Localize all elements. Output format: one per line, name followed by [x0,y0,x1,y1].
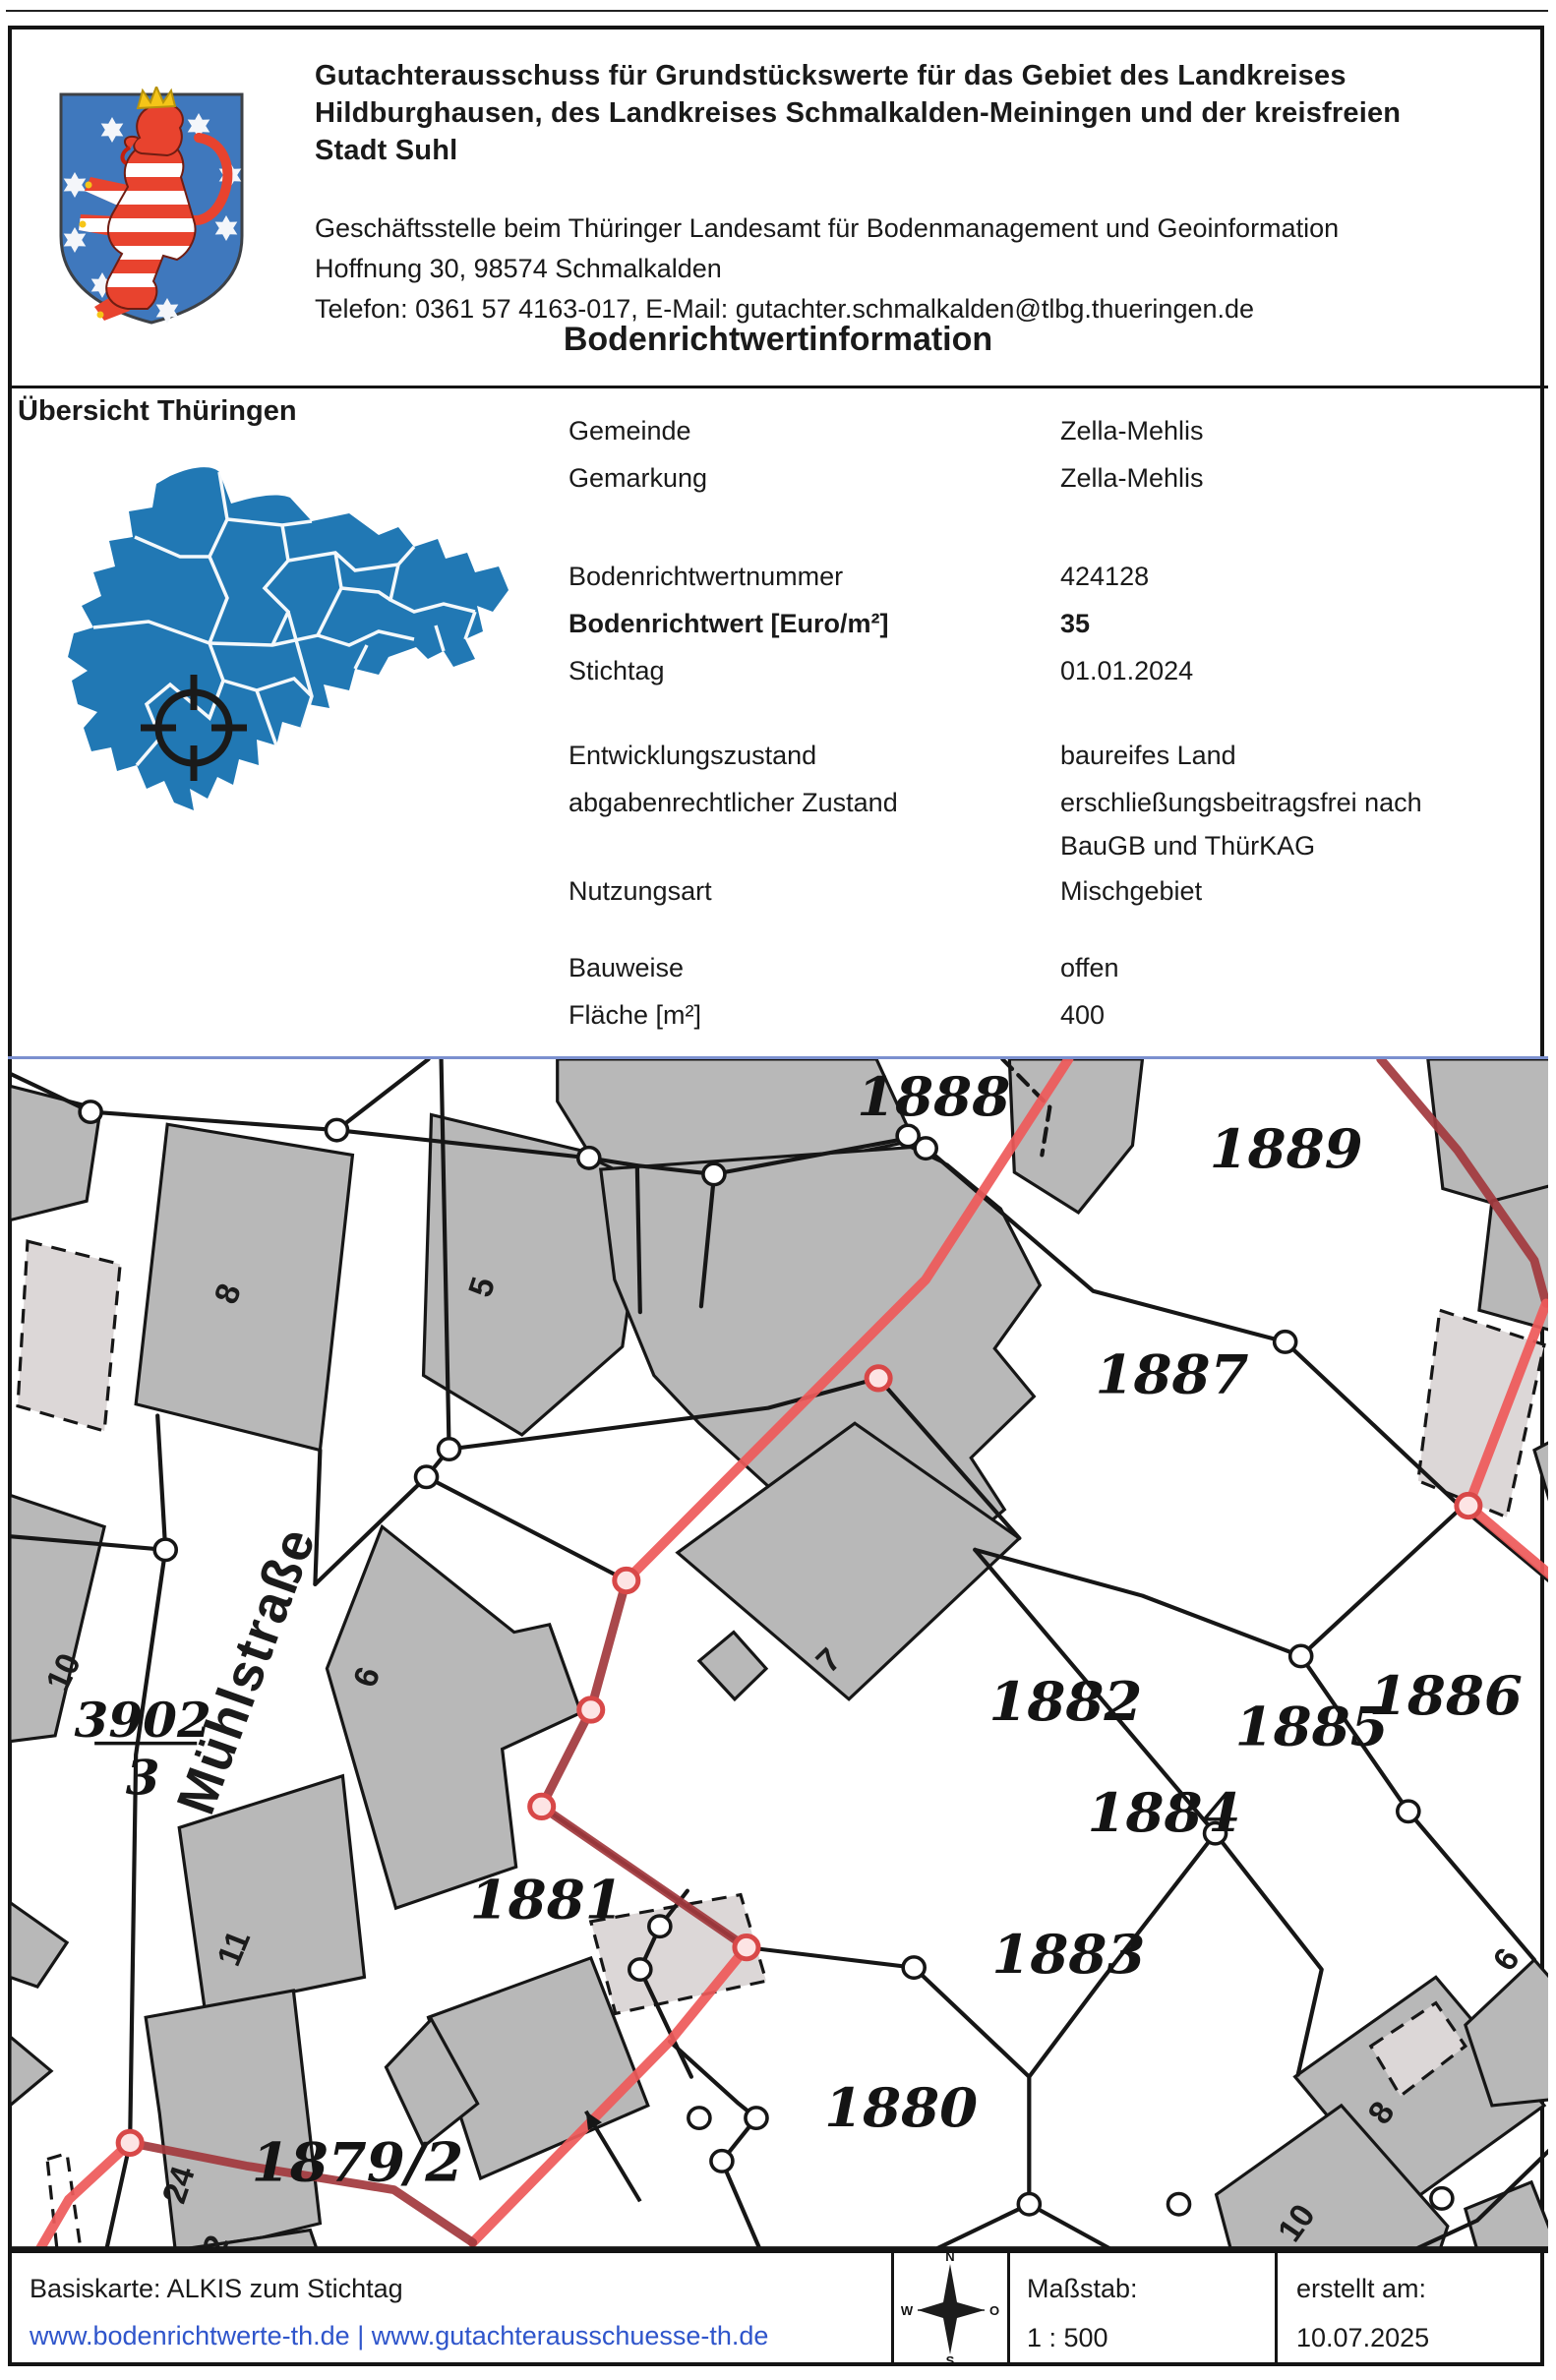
info-label: Entwicklungszustand [569,732,1060,779]
boundary-point [1168,2194,1190,2215]
zone-boundary-point [1457,1494,1480,1517]
info-value: Mischgebiet [1060,867,1513,915]
info-row: Bauweiseoffen [569,944,1532,991]
bodenrichtwert-document-page: Gutachterausschuss für Grundstückswerte … [0,0,1556,2380]
scale-label: Maßstab: [1027,2274,1138,2304]
office-line-2: Hoffnung 30, 98574 Schmalkalden [315,249,1515,289]
parcel-number-label: 1882 [988,1671,1142,1734]
parcel-boundary [427,1477,627,1580]
boundary-point [439,1439,460,1459]
building-footprint [18,1241,120,1431]
zone-boundary-point [615,1569,638,1591]
link-bodenrichtwerte[interactable]: www.bodenrichtwerte-th.de [30,2321,350,2350]
boundary-point [915,1138,936,1159]
parcel-number-label: 1888 [857,1066,1010,1129]
parcel-boundary [933,2204,1029,2250]
info-label: Gemarkung [569,454,1060,502]
parcel-boundary [1301,1508,1462,1656]
document-title: Bodenrichtwertinformation [12,321,1544,359]
parcel-fraction-numerator: 3902 [75,1693,211,1749]
boundary-point [1018,2194,1040,2215]
boundary-point [578,1148,600,1168]
link-gutachterausschuesse[interactable]: www.gutachterausschuesse-th.de [372,2321,769,2350]
info-value: offen [1060,944,1513,991]
boundary-point [649,1916,671,1936]
boundary-point [1398,1801,1419,1821]
info-label: Bauweise [569,944,1060,991]
header-section: Gutachterausschuss für Grundstückswerte … [12,30,1544,386]
parcel-boundary [336,1059,428,1130]
boundary-point [629,1959,651,1980]
boundary-point [711,2151,733,2172]
compass-s: S [946,2353,955,2366]
zone-boundary-point [867,1367,890,1390]
zone-boundary-point [530,1795,554,1817]
building-footprint [699,1633,766,1699]
created-value: 10.07.2025 [1296,2323,1429,2353]
zone-boundary-point [579,1698,603,1721]
basemap-note: Basiskarte: ALKIS zum Stichtag [30,2274,403,2304]
info-row: GemeindeZella-Mehlis [569,407,1532,454]
parcel-number-label: 1879/2 [252,2131,464,2194]
building-footprint [327,1526,580,1908]
parcel-boundary [1029,2204,1112,2250]
info-label: Fläche [m²] [569,991,1060,1039]
parcel-number-label: 1887 [1095,1343,1248,1406]
parcel-boundary [975,1550,1300,1656]
info-row: Bodenrichtwert [Euro/m²]35 [569,600,1532,647]
compass-n: N [945,2252,954,2264]
info-label: Stichtag [569,647,1060,694]
building-footprint [1534,1438,1548,1529]
footer-vline-3 [1275,2250,1278,2366]
building-footprint [136,1124,352,1450]
header-divider [8,386,1548,388]
info-value: Zella-Mehlis [1060,407,1513,454]
zone-boundary-point [118,2131,142,2154]
info-label: Gemeinde [569,407,1060,454]
parcel-boundary [1216,1833,1322,2075]
thuringia-overview-map [54,462,512,840]
parcel-boundary [670,2042,760,2250]
building-footprint [1009,1059,1142,1213]
boundary-point [1275,1332,1296,1352]
info-row: GemarkungZella-Mehlis [569,454,1532,502]
info-value: erschließungsbeitragsfrei nach BauGB und… [1060,779,1513,867]
office-line-1: Geschäftsstelle beim Thüringer Landesamt… [315,208,1515,249]
boundary-point [703,1163,725,1184]
property-info-table: GemeindeZella-MehlisGemarkungZella-Mehli… [569,407,1532,1039]
parcel-boundary [637,1165,640,1312]
footer-links: www.bodenrichtwerte-th.de | www.gutachte… [30,2321,768,2351]
info-row: Stichtag01.01.2024 [569,647,1532,694]
boundary-point [903,1957,925,1978]
parcel-number-label: 1881 [470,1869,624,1932]
info-label: abgabenrechtlicher Zustand [569,779,1060,867]
info-value: 400 [1060,991,1513,1039]
parcel-number-label: 1889 [1210,1118,1363,1181]
info-label: Bodenrichtwert [Euro/m²] [569,600,1060,647]
zone-boundary-point [735,1935,758,1958]
info-row: abgabenrechtlicher Zustanderschließungsb… [569,779,1532,867]
created-label: erstellt am: [1296,2274,1426,2304]
boundary-point [746,2108,767,2128]
parcel-number-label: 1883 [991,1924,1145,1987]
info-value: 01.01.2024 [1060,647,1513,694]
boundary-point [326,1119,347,1140]
parcel-number-label: 1880 [824,2077,978,2140]
building-footprint [10,2037,51,2106]
building-footprint [146,1991,320,2250]
compass-w: W [901,2303,914,2318]
parcel-number-label: 1884 [1087,1782,1240,1845]
compass-rose-icon: N S W O [893,2252,1007,2366]
info-label: Nutzungsart [569,867,1060,915]
parcel-fraction-denominator: 3 [126,1750,160,1806]
street-name-label: Mühlstraße [165,1519,328,1821]
info-row: Bodenrichtwertnummer424128 [569,553,1532,600]
thuringia-coat-of-arms [51,87,252,330]
info-row: Fläche [m²]400 [569,991,1532,1039]
thuringia-outline [68,467,509,810]
parcel-number-label: 1885 [1235,1696,1389,1758]
boundary-point [1431,2188,1453,2209]
info-value: 35 [1060,600,1513,647]
boundary-point [80,1101,101,1122]
info-label: Bodenrichtwertnummer [569,553,1060,600]
cadastral-map: 1888188918871882188518861884188318811880… [10,1059,1548,2250]
link-separator: | [357,2321,364,2350]
scale-value: 1 : 500 [1027,2323,1108,2353]
info-row: NutzungsartMischgebiet [569,867,1532,915]
boundary-point [688,2108,710,2128]
compass-o: O [989,2303,999,2318]
boundary-point [1290,1645,1312,1666]
info-value: baureifes Land [1060,732,1513,779]
info-value: Zella-Mehlis [1060,454,1513,502]
boundary-point [154,1539,176,1560]
info-row: Entwicklungszustandbaureifes Land [569,732,1532,779]
boundary-point [416,1466,438,1487]
parcel-boundary [1462,1508,1548,1588]
overview-title: Übersicht Thüringen [18,395,297,428]
footer-divider [8,2250,1548,2253]
info-value: 424128 [1060,553,1513,600]
organization-title: Gutachterausschuss für Grundstückswerte … [315,57,1475,169]
footer-vline-2 [1007,2250,1010,2366]
building-footprint [10,1902,67,1987]
page-top-rule [6,10,1548,12]
parcel-boundary [157,1415,165,1549]
parcel-number-label: 1886 [1369,1665,1523,1728]
